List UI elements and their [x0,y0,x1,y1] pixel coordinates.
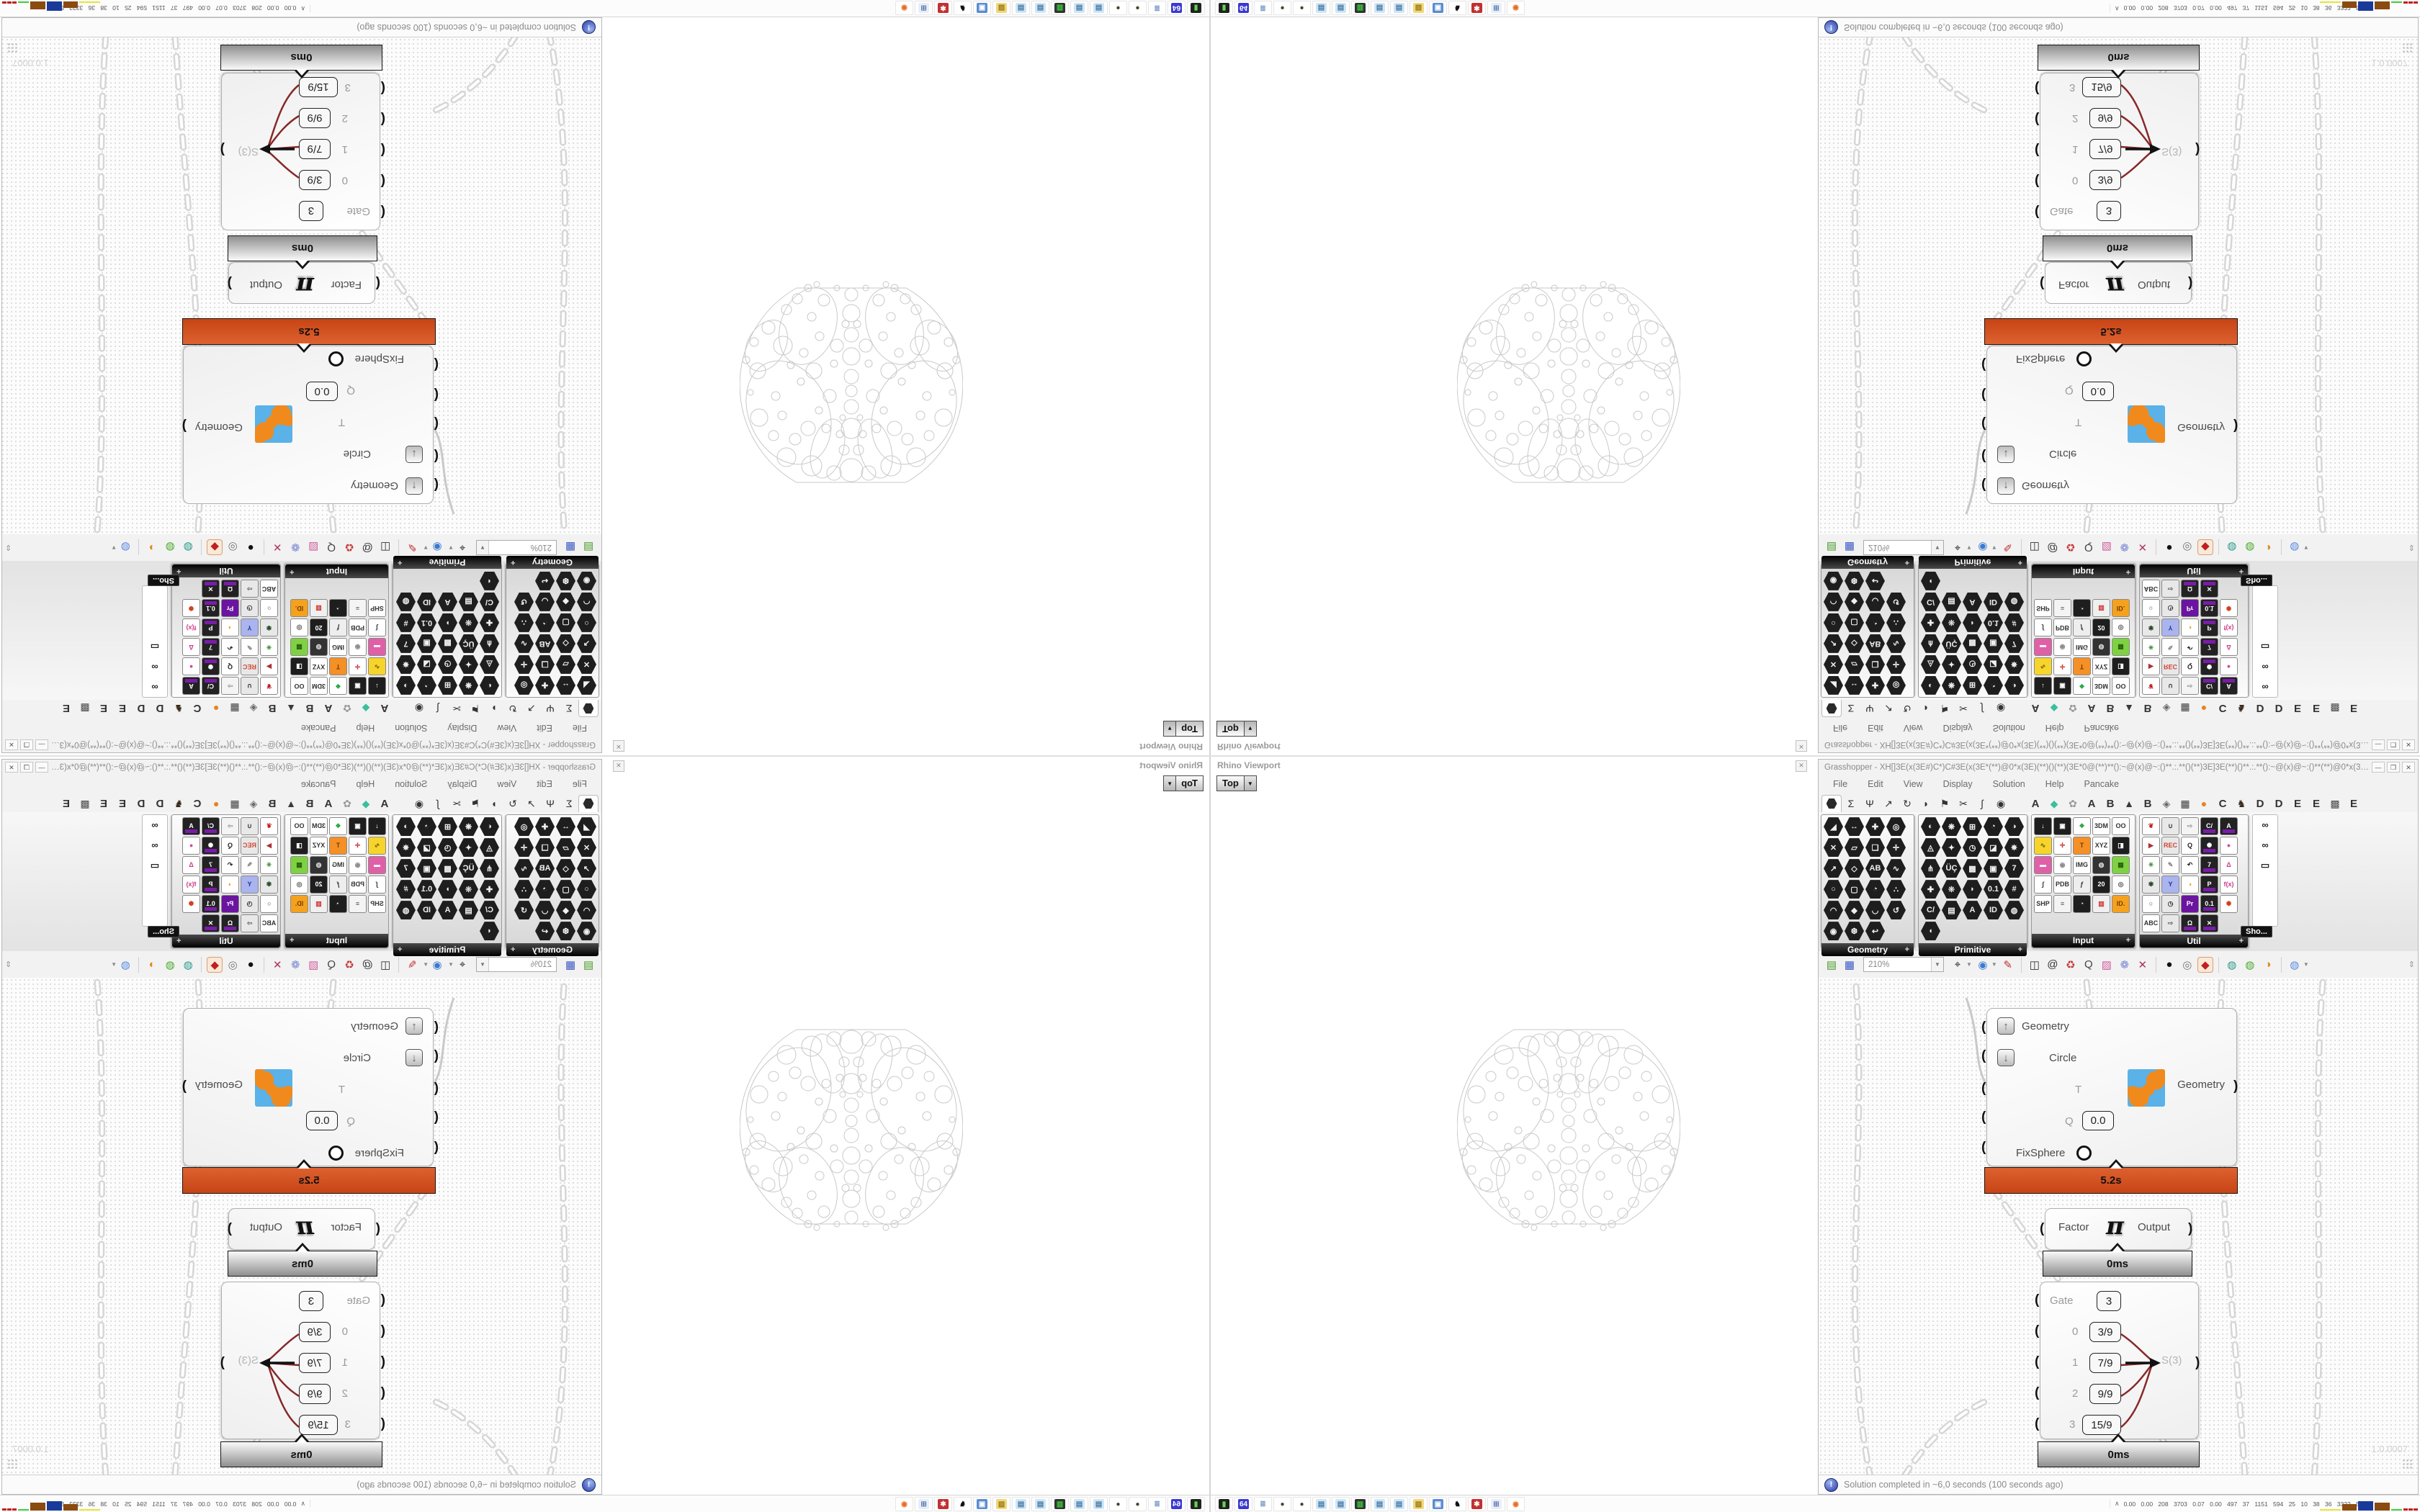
input-connector[interactable]: ( [1981,390,1991,400]
component-icon[interactable]: ◡ [535,901,555,920]
input-connector[interactable]: ( [371,278,380,289]
component-icon[interactable]: XYZ [2092,837,2110,855]
minimize-icon[interactable]: — [2372,762,2385,773]
component-icon[interactable]: C/ [480,592,499,611]
knot-icon[interactable]: ● [1273,1,1291,15]
show-hidden-icons-chevron[interactable]: ∧ [300,4,305,12]
up-arrow-icon[interactable]: ↑ [405,477,423,495]
viewport-tab-top[interactable]: Top ▼ [1163,775,1204,791]
tab-plugin-e2[interactable]: E [94,700,113,716]
group-blue-icon[interactable]: ◍ [2287,540,2302,554]
component-icon[interactable]: ↗ [577,859,596,878]
component-icon[interactable]: Y [2161,876,2179,894]
cluster-box-icon[interactable]: ▨ [2099,540,2114,554]
component-icon[interactable]: ▤ [459,901,478,920]
component-icon[interactable]: ↔ [556,675,575,695]
cluster-box-icon[interactable]: ▨ [2099,958,2114,972]
preview-shaded-icon[interactable]: ◆ [2198,958,2213,972]
component-icon[interactable]: C/ [2200,677,2218,695]
component-icon[interactable]: REC [2161,837,2179,855]
component-icon[interactable]: AB [1865,634,1885,653]
component-icon[interactable]: ✳ [260,638,278,656]
component-icon[interactable]: ✾ [2142,876,2160,894]
component-icon[interactable]: ▶ [260,657,278,675]
sketch-pen-icon[interactable]: ✎ [2001,540,2015,554]
component-icon[interactable]: ▩ [1963,634,1982,653]
component-icon[interactable]: ○ [577,613,596,632]
tab-curve[interactable]: ↻ [503,796,522,812]
notepad-icon[interactable]: ▤ [1012,1497,1030,1511]
overflow-icon[interactable]: ∞ [146,680,163,694]
component-icon[interactable]: ◬ [1921,654,1940,674]
tab-mesh[interactable]: ⚑ [1935,796,1954,812]
component-icon[interactable]: 0.1 [417,880,436,899]
component-icon[interactable]: ⋔ [480,859,499,878]
tab-maths[interactable]: Σ [1842,700,1860,716]
component-icon[interactable]: ◡ [1865,592,1885,611]
component-icon[interactable]: ∫ [368,876,386,894]
crossref-icon[interactable]: ✕ [2136,958,2150,972]
grasshopper-titlebar[interactable]: Grasshopper - XH[]3E(x(3E#)C*)C#3E(x(3E*… [1819,760,2418,775]
component-icon[interactable]: ƒ [329,618,347,636]
component-icon[interactable]: ❋ [459,675,478,695]
tab-plugin-dots[interactable]: ▩ [2326,700,2344,716]
component-icon[interactable]: ∪ [241,817,259,835]
component-icon[interactable]: ◷ [2161,895,2179,913]
tab-mesh[interactable]: ⚑ [466,796,485,812]
floppy64-icon[interactable]: 64 [1234,1,1252,15]
component-icon[interactable]: ◉ [349,856,367,874]
component-icon[interactable]: ⇨ [2181,817,2199,835]
tab-plugin-a2[interactable]: A [2082,700,2101,716]
minimize-icon[interactable]: — [2372,739,2385,750]
input-connector[interactable]: ( [2035,1356,2044,1367]
component-icon[interactable]: OO [2112,817,2130,835]
component-icon[interactable]: ▣ [349,817,367,835]
component-icon[interactable]: ◎ [2112,876,2130,894]
tab-plugin-d2[interactable]: D [2269,796,2288,812]
component-icon[interactable]: ◉ [2053,638,2071,656]
tab-intersect[interactable]: ✂ [1954,796,1973,812]
component-icon[interactable]: ⊞ [438,817,457,837]
component-icon[interactable]: ◨ [2112,657,2130,675]
component-icon[interactable]: ✛ [2053,657,2071,675]
component-icon[interactable]: ✕ [577,838,596,858]
component-icon[interactable]: ✺ [2220,895,2238,913]
component-icon[interactable]: ◢ [577,675,596,695]
q-value-box[interactable]: 0.0 [2082,1111,2114,1130]
zoom-extents-icon[interactable]: ⌖ [1950,540,1965,554]
preview-wire-icon[interactable]: ◎ [2180,540,2195,554]
component-icon[interactable]: Q [221,837,239,855]
tab-plugin-a2[interactable]: A [319,796,338,812]
component-icon[interactable]: ∴ [1886,880,1906,899]
palette-label[interactable]: Geometry [506,943,599,956]
component-icon[interactable]: ∴ [1886,613,1906,632]
component-icon[interactable]: ❋ [1942,817,1961,837]
component-icon[interactable]: Y [241,618,259,636]
component-icon[interactable]: ◠ [577,901,596,920]
component-icon[interactable]: ◷ [241,895,259,913]
component-icon[interactable]: ▶ [2142,657,2160,675]
open-document-icon[interactable]: ▤ [1824,958,1839,972]
component-icon[interactable]: ◗ [438,613,457,632]
component-icon[interactable]: ❆ [556,571,575,590]
component-icon[interactable]: A [2220,677,2238,695]
tab-intersect[interactable]: ✂ [447,796,466,812]
input-connector[interactable]: ( [376,1295,385,1305]
input-connector[interactable]: ( [2035,83,2044,94]
preview-shaded-icon[interactable]: ◆ [207,958,222,972]
input-connector[interactable]: ( [376,1387,385,1398]
tab-display[interactable]: ◉ [1991,700,2010,716]
output-connector[interactable]: ) [215,1357,225,1368]
tab-plugin-d1[interactable]: D [2251,796,2269,812]
calculator-icon[interactable]: ⊞ [1487,1,1505,15]
component-icon[interactable]: 7 [202,856,220,874]
down-arrow-icon[interactable]: ↓ [1997,446,2015,463]
tab-plugin-dots[interactable]: ▩ [76,796,94,812]
zoom-extents-icon[interactable]: ⌖ [455,540,470,554]
menu-help[interactable]: Help [2035,779,2074,789]
row-value-box[interactable]: 7/9 [2089,1353,2121,1373]
input-connector[interactable]: ( [376,176,385,186]
overflow-icon[interactable]: ∞ [146,818,163,832]
component-icon[interactable]: ID. [2112,895,2130,913]
gate-value-box[interactable]: 3 [2097,1291,2121,1311]
fixsphere-cluster-component[interactable]: ( ( ( ( ( ↑ Geometry ↓ Circle T Q 0.0 Fi… [183,346,434,504]
q-value-box[interactable]: 0.0 [306,382,338,401]
component-icon[interactable]: ↩ [1865,922,1885,941]
component-icon[interactable]: ÜÇ [1942,634,1961,653]
overflow-icon[interactable]: ∞ [2257,660,2274,674]
component-icon[interactable]: ↗ [577,634,596,653]
component-icon[interactable]: ID. [290,895,308,913]
perf-monitor-icon[interactable]: ▥ [1351,1,1369,15]
component-icon[interactable]: OO [290,677,308,695]
component-icon[interactable]: ▣ [349,677,367,695]
component-icon[interactable]: ▦ [2112,856,2130,874]
tab-mesh[interactable]: ⚑ [1935,700,1954,716]
remote-at-icon[interactable]: @ [2045,958,2060,972]
knot-icon[interactable]: ● [1273,1497,1291,1511]
component-icon[interactable]: ✛ [1886,838,1906,858]
fixsphere-toggle[interactable] [328,1146,344,1161]
component-icon[interactable]: ❊ [459,613,478,632]
input-connector[interactable]: ( [376,1418,385,1429]
toolbar-scroll-icon[interactable]: ⇕ [2408,543,2415,552]
preview-wire-icon[interactable]: ◎ [2180,958,2195,972]
cluster-box-icon[interactable]: ▨ [306,958,321,972]
component-icon[interactable]: Pr [2181,895,2199,913]
component-icon[interactable]: f(x) [2220,876,2238,894]
menu-help[interactable]: Help [346,723,385,733]
tab-plugin-d2[interactable]: D [132,796,151,812]
tab-curve[interactable]: ↻ [1898,700,1917,716]
galapagos-balloon-icon[interactable]: ❁ [2117,958,2132,972]
component-icon[interactable]: Pr [221,599,239,617]
component-icon[interactable]: ✛ [349,837,367,855]
preview-shaded-icon[interactable]: ◆ [2198,540,2213,554]
input-connector[interactable]: ( [429,390,439,400]
palette-label[interactable]: Primitive [393,943,501,956]
component-icon[interactable]: ◑ [2181,618,2199,636]
component-icon[interactable]: ◗ [1963,880,1982,899]
component-icon[interactable]: ✦ [459,654,478,674]
input-connector[interactable]: ( [429,1050,439,1061]
component-icon[interactable]: ▦ [290,856,308,874]
perf-monitor-icon[interactable]: ▥ [1051,1497,1069,1511]
component-icon[interactable]: ❆ [1845,571,1864,590]
component-icon[interactable]: ◉ [577,571,596,590]
component-icon[interactable]: f(x) [182,876,200,894]
component-icon[interactable]: ↶ [221,638,239,656]
component-icon[interactable]: ▬ [2034,856,2052,874]
knot-icon[interactable]: ● [1129,1497,1147,1511]
tab-vector[interactable]: ↗ [1879,700,1898,716]
tab-plugin-b1[interactable]: B [2101,796,2120,812]
group-teal-icon[interactable]: ◍ [2225,958,2239,972]
component-icon[interactable]: ✕ [2200,914,2218,932]
save-document-icon[interactable]: ▦ [563,958,578,972]
component-icon[interactable]: ◖ [480,571,499,590]
sketch-pen-icon[interactable]: ✎ [405,540,419,554]
component-icon[interactable]: ✾ [260,876,278,894]
calculator-icon[interactable]: ⊞ [915,1,933,15]
tab-plugin-flower[interactable]: ✿ [2063,796,2082,812]
component-icon[interactable]: 0.1 [202,599,220,617]
component-icon[interactable]: P [2200,618,2218,636]
input-connector[interactable]: ( [429,1083,439,1094]
tab-curve[interactable]: ↻ [503,700,522,716]
component-icon[interactable]: ❋ [1942,675,1961,695]
component-icon[interactable]: ✦ [459,838,478,858]
component-icon[interactable]: # [2004,880,2024,899]
component-icon[interactable]: ▦ [2112,638,2130,656]
component-icon[interactable]: ƒ [2073,876,2091,894]
notepad-icon[interactable]: ▤ [1031,1,1049,15]
component-icon[interactable]: IMG [2073,856,2091,874]
maximize-icon[interactable]: ❒ [2387,762,2400,773]
component-icon[interactable]: ✵ [396,838,416,858]
component-icon[interactable]: ◔ [2073,895,2091,913]
chevron-down-icon[interactable]: ▼ [477,958,489,971]
component-icon[interactable]: ◔ [417,675,436,695]
drive-icon[interactable]: ▮ [1187,1,1205,15]
palette-label[interactable]: Util [2140,564,2248,577]
component-icon[interactable]: ID [417,901,436,920]
camera-icon[interactable]: ◫ [378,958,393,972]
component-icon[interactable]: 3DM [310,817,328,835]
tab-plugin-b2[interactable]: B [263,796,282,812]
component-icon[interactable]: C/ [2200,817,2218,835]
component-icon[interactable]: A [1963,592,1982,611]
show-hidden-icons-chevron[interactable]: ∧ [2115,1500,2120,1508]
tab-plugin-c[interactable]: C [188,700,207,716]
component-icon[interactable]: ◠ [1824,592,1843,611]
palette-label[interactable]: Input [2032,934,2135,948]
red-gear-icon[interactable]: ✱ [934,1,952,15]
component-icon[interactable]: ✚ [480,613,499,632]
zoom-level-input[interactable]: 210%▼ [476,957,557,972]
component-icon[interactable]: ◷ [438,838,457,858]
calculator-icon[interactable]: ⊞ [1487,1497,1505,1511]
component-icon[interactable]: 7 [2200,856,2218,874]
grasshopper-canvas[interactable]: ( ( ( ( ( ↑ Geometry ↓ Circle T Q 0.0 Fi… [1819,978,2418,1475]
row-value-box[interactable]: 15/9 [2082,1415,2121,1435]
row-value-box[interactable]: 3/9 [2089,170,2121,190]
component-icon[interactable]: ● [2220,837,2238,855]
tab-plugin-gem[interactable]: ◆ [357,796,375,812]
component-icon[interactable]: C/ [1921,592,1940,611]
component-icon[interactable]: ◍ [396,592,416,611]
stream-gate-component[interactable]: ( ( ( ( ( Gate 3 0 3/9 1 7/9 2 9/9 3 [2040,73,2199,230]
row-value-box[interactable]: 9/9 [299,108,331,128]
component-icon[interactable]: ✺ [202,837,220,855]
component-icon[interactable]: ❖ [329,677,347,695]
remote-at-icon[interactable]: @ [2045,540,2060,554]
component-icon[interactable]: ▱ [556,654,575,674]
galapagos-balloon-icon[interactable]: ❁ [2117,540,2132,554]
menu-edit[interactable]: Edit [1857,723,1894,733]
component-icon[interactable]: ◐ [480,817,499,837]
component-icon[interactable]: ↶ [2181,856,2199,874]
menu-help[interactable]: Help [346,779,385,789]
group-orange-icon[interactable]: ◑ [2261,958,2275,972]
close-icon[interactable]: ✕ [1796,760,1807,772]
tab-plugin-mountain[interactable]: ▲ [2120,700,2138,716]
component-icon[interactable]: ◍ [310,638,328,656]
component-icon[interactable]: P [202,876,220,894]
component-icon[interactable]: ▣ [1984,859,2003,878]
component-icon[interactable]: ✎ [2161,856,2179,874]
tab-plugin-shield[interactable]: ◈ [244,796,263,812]
component-icon[interactable]: ✕ [1824,654,1843,674]
palette-label[interactable]: Util [172,935,280,948]
output-connector[interactable]: ) [2188,1223,2197,1234]
component-icon[interactable]: ∴ [514,880,534,899]
zoom-level-input[interactable]: 210%▼ [476,540,557,555]
component-icon[interactable]: ⇨ [2161,914,2179,932]
component-icon[interactable]: ❖ [329,817,347,835]
input-connector[interactable]: ( [1981,359,1991,370]
notepad-icon[interactable]: ▤ [1332,1,1350,15]
component-icon[interactable]: ⊞ [1963,675,1982,695]
cat-icon[interactable]: ♞ [1448,1,1466,15]
tab-plugin-dots[interactable]: ▩ [76,700,94,716]
input-connector[interactable]: ( [376,114,385,125]
tab-plugin-bird[interactable]: ♞ [169,700,188,716]
menu-pancake[interactable]: Pancake [291,723,346,733]
component-icon[interactable]: ✚ [1921,613,1940,632]
gate-value-box[interactable]: 3 [299,1291,323,1311]
component-icon[interactable]: ◑ [396,817,416,837]
row-value-box[interactable]: 7/9 [2089,139,2121,159]
galapagos-balloon-icon[interactable]: ❁ [288,540,302,554]
component-icon[interactable]: ▬ [368,856,386,874]
component-icon[interactable]: Q [2181,837,2199,855]
output-connector[interactable]: ) [2233,420,2243,431]
component-icon[interactable]: C/ [1921,901,1940,920]
save-document-icon[interactable]: ▦ [1842,958,1857,972]
tab-plugin-orange[interactable]: ● [2195,796,2213,812]
tab-sets[interactable]: Ψ [1860,700,1879,716]
gha-cycle-icon[interactable]: ♻ [2063,540,2078,554]
tab-plugin-flower[interactable]: ✿ [338,700,357,716]
component-icon[interactable]: f(x) [182,618,200,636]
component-icon[interactable]: ↺ [514,592,534,611]
component-icon[interactable]: ∿ [2034,657,2052,675]
component-icon[interactable]: Ω [2181,914,2199,932]
component-icon[interactable]: ◪ [417,838,436,858]
input-connector[interactable]: ( [429,480,439,490]
component-icon[interactable]: Pr [2181,599,2199,617]
component-icon[interactable]: Q [2181,657,2199,675]
component-icon[interactable]: T [329,657,347,675]
tab-plugin-e1[interactable]: E [2288,700,2307,716]
component-icon[interactable]: ◨ [2112,837,2130,855]
tab-display[interactable]: ◉ [410,700,429,716]
tab-vector[interactable]: ↗ [522,796,541,812]
component-icon[interactable]: ✕ [2200,580,2218,598]
palette-label[interactable]: Input [2032,564,2135,578]
chevron-down-icon[interactable]: ▼ [477,541,489,554]
remote-at-icon[interactable]: @ [360,540,375,554]
show-hidden-icons-chevron[interactable]: ∧ [300,1500,305,1508]
component-icon[interactable]: Δ [182,638,200,656]
down-arrow-icon[interactable]: ↓ [1997,1049,2015,1066]
component-icon[interactable]: ✎ [241,638,259,656]
menu-solution[interactable]: Solution [1983,723,2035,733]
close-icon[interactable]: ✕ [2402,762,2415,773]
notepad-icon[interactable]: ▤ [1070,1497,1088,1511]
tab-plugin-e1[interactable]: E [113,796,132,812]
overflow-icon[interactable]: ∞ [2257,680,2274,694]
palette-label[interactable]: Geometry [1821,556,1914,569]
menu-help[interactable]: Help [2035,723,2074,733]
red-gear-icon[interactable]: ✱ [1468,1,1486,15]
component-icon[interactable]: A [2220,817,2238,835]
component-icon[interactable]: ▥ [2092,895,2110,913]
component-icon[interactable]: ▢ [1845,613,1864,632]
chevron-down-icon[interactable]: ▼ [2303,544,2309,551]
component-icon[interactable]: Ω [221,914,239,932]
component-icon[interactable]: ⋔ [480,634,499,653]
row-value-box[interactable]: 15/9 [2082,77,2121,97]
component-icon[interactable]: ✚ [1921,880,1940,899]
row-value-box[interactable]: 3/9 [299,170,331,190]
red-gear-icon[interactable]: ✱ [934,1497,952,1511]
chevron-down-icon[interactable]: ▼ [111,544,117,551]
fixsphere-cluster-component[interactable]: ( ( ( ( ( ↑ Geometry ↓ Circle T Q 0.0 Fi… [1986,346,2237,504]
gha-cycle-icon[interactable]: ♻ [342,540,357,554]
tab-transform[interactable]: ∫ [429,796,447,812]
notepad-icon[interactable]: ▤ [1090,1497,1108,1511]
tab-transform[interactable]: ∫ [1973,700,1991,716]
input-connector[interactable]: ( [2040,1223,2049,1234]
component-icon[interactable]: ◑ [2181,876,2199,894]
component-icon[interactable]: ❏ [1865,838,1885,858]
group-teal-icon[interactable]: ◍ [181,540,195,554]
component-icon[interactable]: ▢ [556,880,575,899]
component-icon[interactable]: ✺ [2200,657,2218,675]
preview-eye-icon[interactable]: ◉ [1976,958,1990,972]
display-settings-icon[interactable]: ▣ [973,1,991,15]
component-icon[interactable]: ◡ [535,592,555,611]
component-icon[interactable]: REC [241,837,259,855]
component-icon[interactable]: IMG [329,638,347,656]
chevron-down-icon[interactable]: ▼ [1164,721,1176,736]
